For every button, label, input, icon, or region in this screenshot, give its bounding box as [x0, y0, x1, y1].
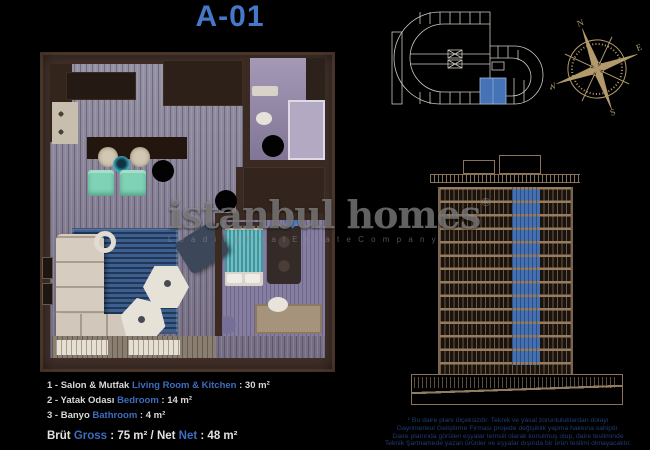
tower-facade — [438, 187, 573, 375]
disclaimer-text: * Bu daire planı ölçeksizdir. Teknik ve … — [372, 417, 644, 448]
podium-base — [411, 374, 623, 405]
vanity-desk — [255, 304, 322, 334]
kitchen-sink — [52, 102, 78, 144]
total-mid: : 75 m² / Net — [107, 430, 179, 442]
interior-wall — [215, 213, 325, 220]
vanity-chair — [268, 297, 288, 312]
brochure-page: A-01 — [0, 0, 650, 450]
podium-ramp-line — [412, 375, 622, 404]
legend-area: : 14 m² — [159, 395, 192, 406]
legend-row-bedroom: 2 - Yatak Odası Bedroom : 14 m² — [47, 393, 270, 408]
legend-total-area: Brüt Gross : 75 m² / Net Net : 48 m² — [47, 429, 270, 444]
legend-area: : 30 m² — [236, 380, 269, 391]
table-decor — [164, 280, 171, 287]
total-gross-en: Gross — [74, 430, 107, 442]
building-elevation — [405, 150, 630, 410]
dining-chair — [88, 170, 114, 196]
total-net-en: Net — [179, 430, 198, 442]
toilet — [256, 112, 272, 125]
compass-e-label: E — [635, 42, 644, 53]
disclaimer-line: Daire planında görülen eşyalar temsili o… — [372, 433, 644, 441]
pillow — [245, 274, 260, 283]
compass-n-label: N — [575, 17, 585, 29]
legend-tr: 3 - Banyo — [47, 410, 92, 421]
unit-title: A-01 — [150, 0, 310, 34]
roof-railing — [430, 174, 580, 183]
legend-en: Bathroom — [92, 410, 137, 421]
highlighted-unit-column — [512, 187, 540, 365]
key-plan-drawing — [390, 8, 548, 108]
legend-en: Living Room & Kitchen — [132, 380, 237, 391]
disclaimer-line: * Bu daire planı ölçeksizdir. Teknik ve … — [372, 417, 644, 425]
table-decor — [138, 316, 145, 323]
bathroom-shaft — [306, 58, 325, 100]
bed-blanket — [225, 230, 263, 272]
disclaimer-line: Gayrimenkul Geliştirme Firması projede d… — [372, 425, 644, 433]
interior-wall — [243, 160, 325, 167]
compass-w-label: W — [550, 80, 558, 92]
wall-art — [43, 258, 52, 278]
shower — [288, 100, 325, 160]
balcony-bench — [128, 340, 180, 355]
wall-art — [43, 284, 52, 304]
interior-wall — [215, 220, 222, 336]
total-tr: Brüt — [47, 430, 74, 442]
compass-drawing: N E S W — [550, 16, 644, 118]
bed-headboard — [225, 222, 263, 228]
roof-structure — [463, 160, 495, 174]
floor-plan — [40, 52, 335, 372]
roof-structure — [499, 155, 541, 174]
key-plan — [390, 8, 548, 108]
kitchen-counter — [66, 72, 136, 100]
bar-stool — [130, 147, 150, 167]
disclaimer-line: Teknik Şartnamede yazan ürünler ve eşyal… — [372, 440, 644, 448]
dining-chair — [120, 170, 146, 196]
side-table — [94, 231, 116, 253]
legend-en: Bedroom — [117, 395, 159, 406]
compass-s-label: S — [609, 107, 617, 118]
bedroom-loveseat — [267, 226, 301, 284]
room-marker-2 — [215, 190, 237, 212]
total-net-value: : 48 m² — [197, 430, 237, 442]
balcony-bench — [56, 340, 108, 355]
legend-tr: 2 - Yatak Odası — [47, 395, 117, 406]
bathroom-sink — [252, 86, 278, 96]
room-marker-1 — [152, 160, 174, 182]
pillow — [227, 274, 242, 283]
room-legend: 1 - Salon & Mutfak Living Room & Kitchen… — [47, 378, 270, 444]
entry-closet — [163, 60, 243, 106]
compass-rose: N E S W — [550, 16, 644, 118]
legend-row-bathroom: 3 - Banyo Bathroom : 4 m² — [47, 408, 270, 423]
legend-tr: 1 - Salon & Mutfak — [47, 380, 132, 391]
room-marker-3 — [262, 135, 284, 157]
legend-area: : 4 m² — [137, 410, 165, 421]
interior-wall — [243, 58, 250, 160]
legend-row-living: 1 - Salon & Mutfak Living Room & Kitchen… — [47, 378, 270, 393]
